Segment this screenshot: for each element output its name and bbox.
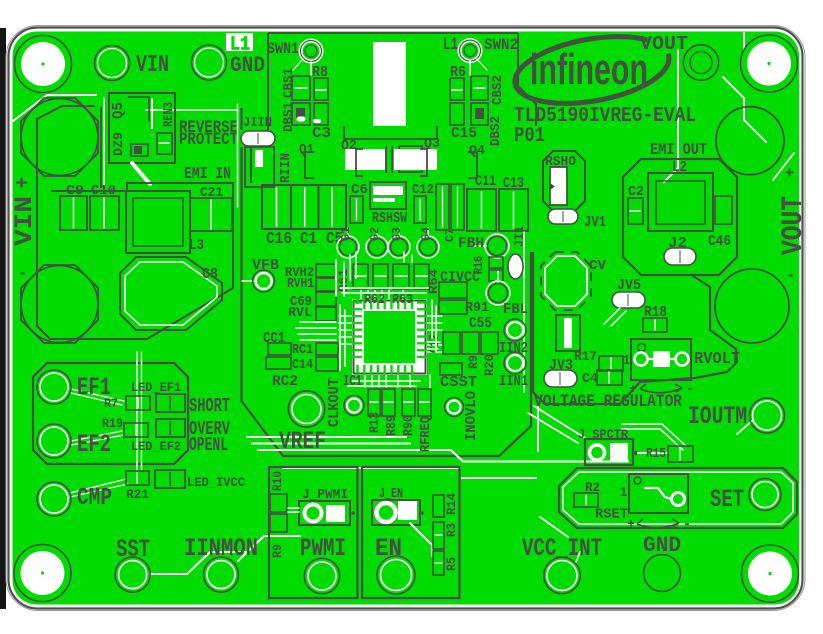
svg-text:C14: C14: [292, 357, 313, 373]
svg-text:R91: R91: [465, 301, 489, 316]
svg-text:JIIN: JIIN: [243, 115, 272, 131]
svg-text:R20: R20: [482, 354, 497, 376]
svg-text:CBS2: CBS2: [491, 75, 506, 105]
svg-text:SWN1: SWN1: [267, 40, 299, 58]
svg-text:Q1: Q1: [299, 142, 314, 158]
svg-text:1: 1: [623, 354, 630, 369]
svg-text:SWN2: SWN2: [484, 36, 518, 54]
svg-text:EMI IN: EMI IN: [184, 164, 231, 183]
svg-text:RSHSW: RSHSW: [372, 211, 407, 227]
svg-text:OPENL: OPENL: [189, 434, 228, 456]
svg-text:INOVLO: INOVLO: [464, 391, 480, 441]
svg-text:G3: G3: [390, 227, 404, 241]
svg-text:CSST: CSST: [440, 375, 477, 391]
svg-text:RVH1: RVH1: [287, 276, 314, 292]
svg-text:+: +: [627, 518, 635, 533]
svg-text:G1: G1: [339, 227, 353, 241]
svg-text:C4: C4: [582, 371, 598, 387]
svg-text:IC1: IC1: [343, 374, 362, 390]
svg-text:1: 1: [620, 486, 627, 501]
svg-text:VIN: VIN: [10, 196, 39, 246]
svg-text:R10: R10: [270, 471, 285, 491]
svg-text:C7: C7: [443, 228, 457, 242]
svg-text:R9: R9: [466, 355, 481, 369]
svg-text:R13: R13: [368, 412, 383, 433]
svg-text:-: -: [786, 266, 795, 285]
svg-text:L3: L3: [189, 238, 204, 254]
svg-text:RC2: RC2: [272, 374, 298, 390]
svg-text:R3: R3: [444, 523, 459, 537]
svg-text:JI1: JI1: [512, 226, 527, 247]
svg-text:C3: C3: [312, 126, 331, 142]
svg-text:L1: L1: [443, 35, 458, 55]
svg-text:PROTECT: PROTECT: [179, 130, 238, 150]
svg-text:C17: C17: [427, 334, 442, 353]
svg-text:VOUT: VOUT: [776, 196, 810, 255]
svg-text:DZ9: DZ9: [112, 132, 127, 156]
svg-text:R16: R16: [471, 256, 486, 274]
svg-text:P01: P01: [514, 125, 545, 148]
svg-text:VCC_INT: VCC_INT: [522, 534, 602, 563]
svg-text:DBS1: DBS1: [282, 102, 297, 132]
svg-text:R89: R89: [385, 415, 400, 436]
svg-text:RSET: RSET: [595, 507, 628, 523]
svg-text:IOUTM: IOUTM: [688, 402, 747, 431]
svg-text:RIIN: RIIN: [278, 153, 294, 183]
svg-text:C16: C16: [266, 229, 292, 248]
svg-text:C1: C1: [300, 229, 317, 248]
svg-text:RFREQ: RFREQ: [419, 416, 434, 452]
svg-text:R64: R64: [426, 269, 441, 294]
svg-text:JV1: JV1: [584, 215, 606, 231]
svg-text:R7: R7: [104, 396, 118, 411]
svg-text:EMI OUT: EMI OUT: [650, 140, 707, 159]
svg-text:RVOLT: RVOLT: [694, 349, 740, 368]
svg-text:EF2: EF2: [77, 430, 111, 459]
svg-text:R5: R5: [444, 557, 459, 571]
svg-text:RC1: RC1: [292, 342, 313, 358]
svg-text:C11: C11: [475, 174, 496, 190]
svg-text:R62 R63: R62 R63: [364, 292, 413, 308]
svg-text:CLKOUT: CLKOUT: [327, 378, 343, 427]
svg-text:EN: EN: [375, 534, 402, 563]
svg-text:R15: R15: [646, 447, 666, 462]
svg-text:RVL: RVL: [288, 305, 312, 321]
svg-text:SST: SST: [116, 535, 150, 564]
svg-text:LED_EF2: LED_EF2: [131, 439, 181, 454]
svg-text:IINMON: IINMON: [184, 534, 258, 563]
svg-text:CBS1: CBS1: [282, 68, 297, 98]
svg-text:-: -: [683, 518, 691, 533]
svg-text:VOLTAGE REGULATOR: VOLTAGE REGULATOR: [534, 392, 682, 412]
svg-text:LED_IVCC: LED_IVCC: [187, 475, 245, 490]
svg-text:GND: GND: [230, 52, 265, 78]
svg-text:-: -: [18, 264, 27, 284]
svg-text:R14: R14: [444, 493, 459, 515]
svg-text:R9: R9: [270, 544, 285, 558]
svg-text:CMP: CMP: [77, 485, 112, 512]
svg-text:SET: SET: [710, 485, 744, 514]
svg-text:-: -: [686, 383, 694, 398]
svg-text:R90: R90: [402, 415, 417, 436]
svg-text:SHORT: SHORT: [189, 395, 230, 417]
svg-text:C55: C55: [469, 316, 492, 332]
svg-text:C46: C46: [708, 234, 731, 250]
svg-text:Q5: Q5: [111, 102, 127, 119]
svg-text:C15: C15: [451, 126, 477, 142]
svg-text:+: +: [785, 164, 794, 183]
svg-text:G2: G2: [368, 227, 382, 241]
svg-text:VIN: VIN: [136, 52, 169, 79]
svg-text:+: +: [15, 173, 28, 195]
svg-text:FBL: FBL: [503, 302, 528, 318]
svg-text:G4: G4: [419, 227, 433, 241]
svg-text:R19: R19: [102, 416, 123, 431]
svg-text:C8: C8: [202, 267, 218, 283]
svg-text:R17: R17: [574, 349, 597, 365]
svg-text:VREF: VREF: [279, 427, 326, 456]
svg-text:CV: CV: [589, 258, 606, 274]
svg-text:DBS2: DBS2: [489, 116, 504, 146]
svg-text:IIN1: IIN1: [499, 374, 528, 390]
svg-text:REN3: REN3: [162, 102, 177, 127]
svg-text:R21: R21: [126, 487, 149, 502]
svg-text:FBH: FBH: [458, 236, 484, 252]
svg-text:infineon: infineon: [530, 45, 648, 94]
svg-text:VFB: VFB: [252, 258, 279, 274]
svg-text:CC1: CC1: [263, 331, 285, 347]
svg-text:LED_EF1: LED_EF1: [131, 380, 181, 395]
